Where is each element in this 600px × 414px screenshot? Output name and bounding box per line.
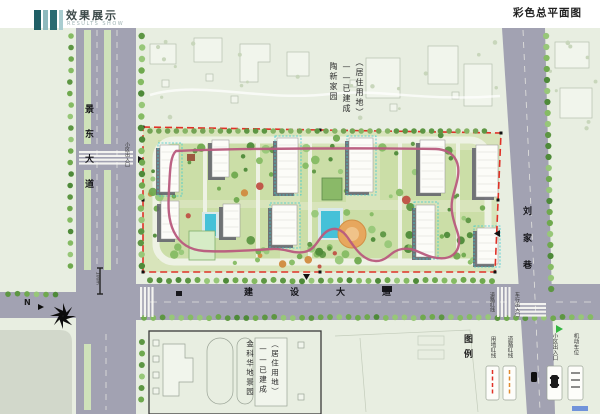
master-plan-page: 效果展示 RESULTS SHOW 彩色总平面图 景东大道 建设大道 刘家巷 陶… <box>0 0 600 414</box>
east-road-name: 刘家巷 <box>521 206 530 287</box>
north-area-landuse: （居住用地） <box>355 58 363 118</box>
north-area-name: 陶新家园 <box>329 62 337 102</box>
header-subtitle: RESULTS SHOW <box>67 22 124 27</box>
car-on-road <box>531 372 537 382</box>
sw-corner-sidewalk <box>0 330 72 414</box>
legend-car-symbol <box>550 375 559 388</box>
legend-item-label-parking: 机动车位 <box>572 333 578 355</box>
garden-court <box>322 178 342 200</box>
north-label: N <box>24 299 31 307</box>
south-road-name: 建设大道 <box>244 289 428 298</box>
central-plaza-inner <box>345 227 359 241</box>
page-title: 彩色总平面图 <box>513 8 582 19</box>
small-pavilion <box>187 154 195 161</box>
west-road-name: 景东大道 <box>83 104 92 204</box>
sw-area-status: ——已建成 <box>259 344 267 395</box>
site-entrance-note: 小区出入口 <box>124 142 129 167</box>
legend-item-label-entrance: 小区出入口 <box>551 333 557 361</box>
corner-scale-mark <box>572 406 588 411</box>
west-road <box>76 28 136 414</box>
legend-title: 图例 <box>462 334 471 364</box>
scale-label: 100m <box>94 272 99 285</box>
vehicle-entrance-note: 车行出入口 <box>514 292 519 317</box>
clubhouse <box>189 231 215 260</box>
sw-area-landuse: （居住用地） <box>271 340 279 397</box>
legend-item-label-redline: 用地红线 <box>489 336 495 358</box>
header-title: 效果展示 <box>66 10 118 21</box>
road-redline-note: 道路红线 <box>489 292 494 312</box>
north-area-status: ——已建成 <box>342 62 350 114</box>
sw-area-name: 金科华地景园 <box>246 340 254 397</box>
legend-item-label-roadline: 道路红线 <box>506 336 512 358</box>
